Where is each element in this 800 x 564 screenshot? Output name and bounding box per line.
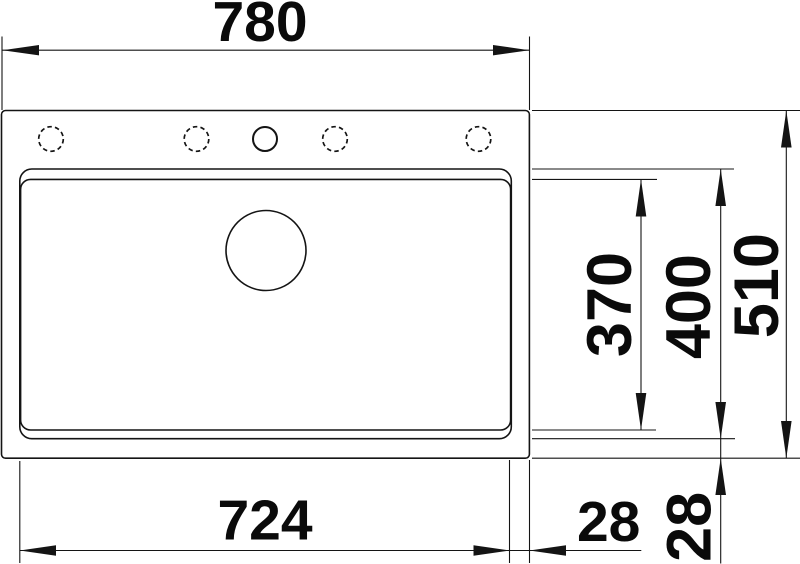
svg-text:780: 780 — [212, 0, 307, 54]
svg-text:28: 28 — [655, 492, 725, 562]
svg-text:724: 724 — [217, 489, 312, 553]
svg-text:510: 510 — [722, 233, 792, 338]
svg-text:28: 28 — [577, 490, 640, 554]
svg-text:370: 370 — [575, 252, 645, 357]
svg-text:400: 400 — [654, 254, 724, 359]
